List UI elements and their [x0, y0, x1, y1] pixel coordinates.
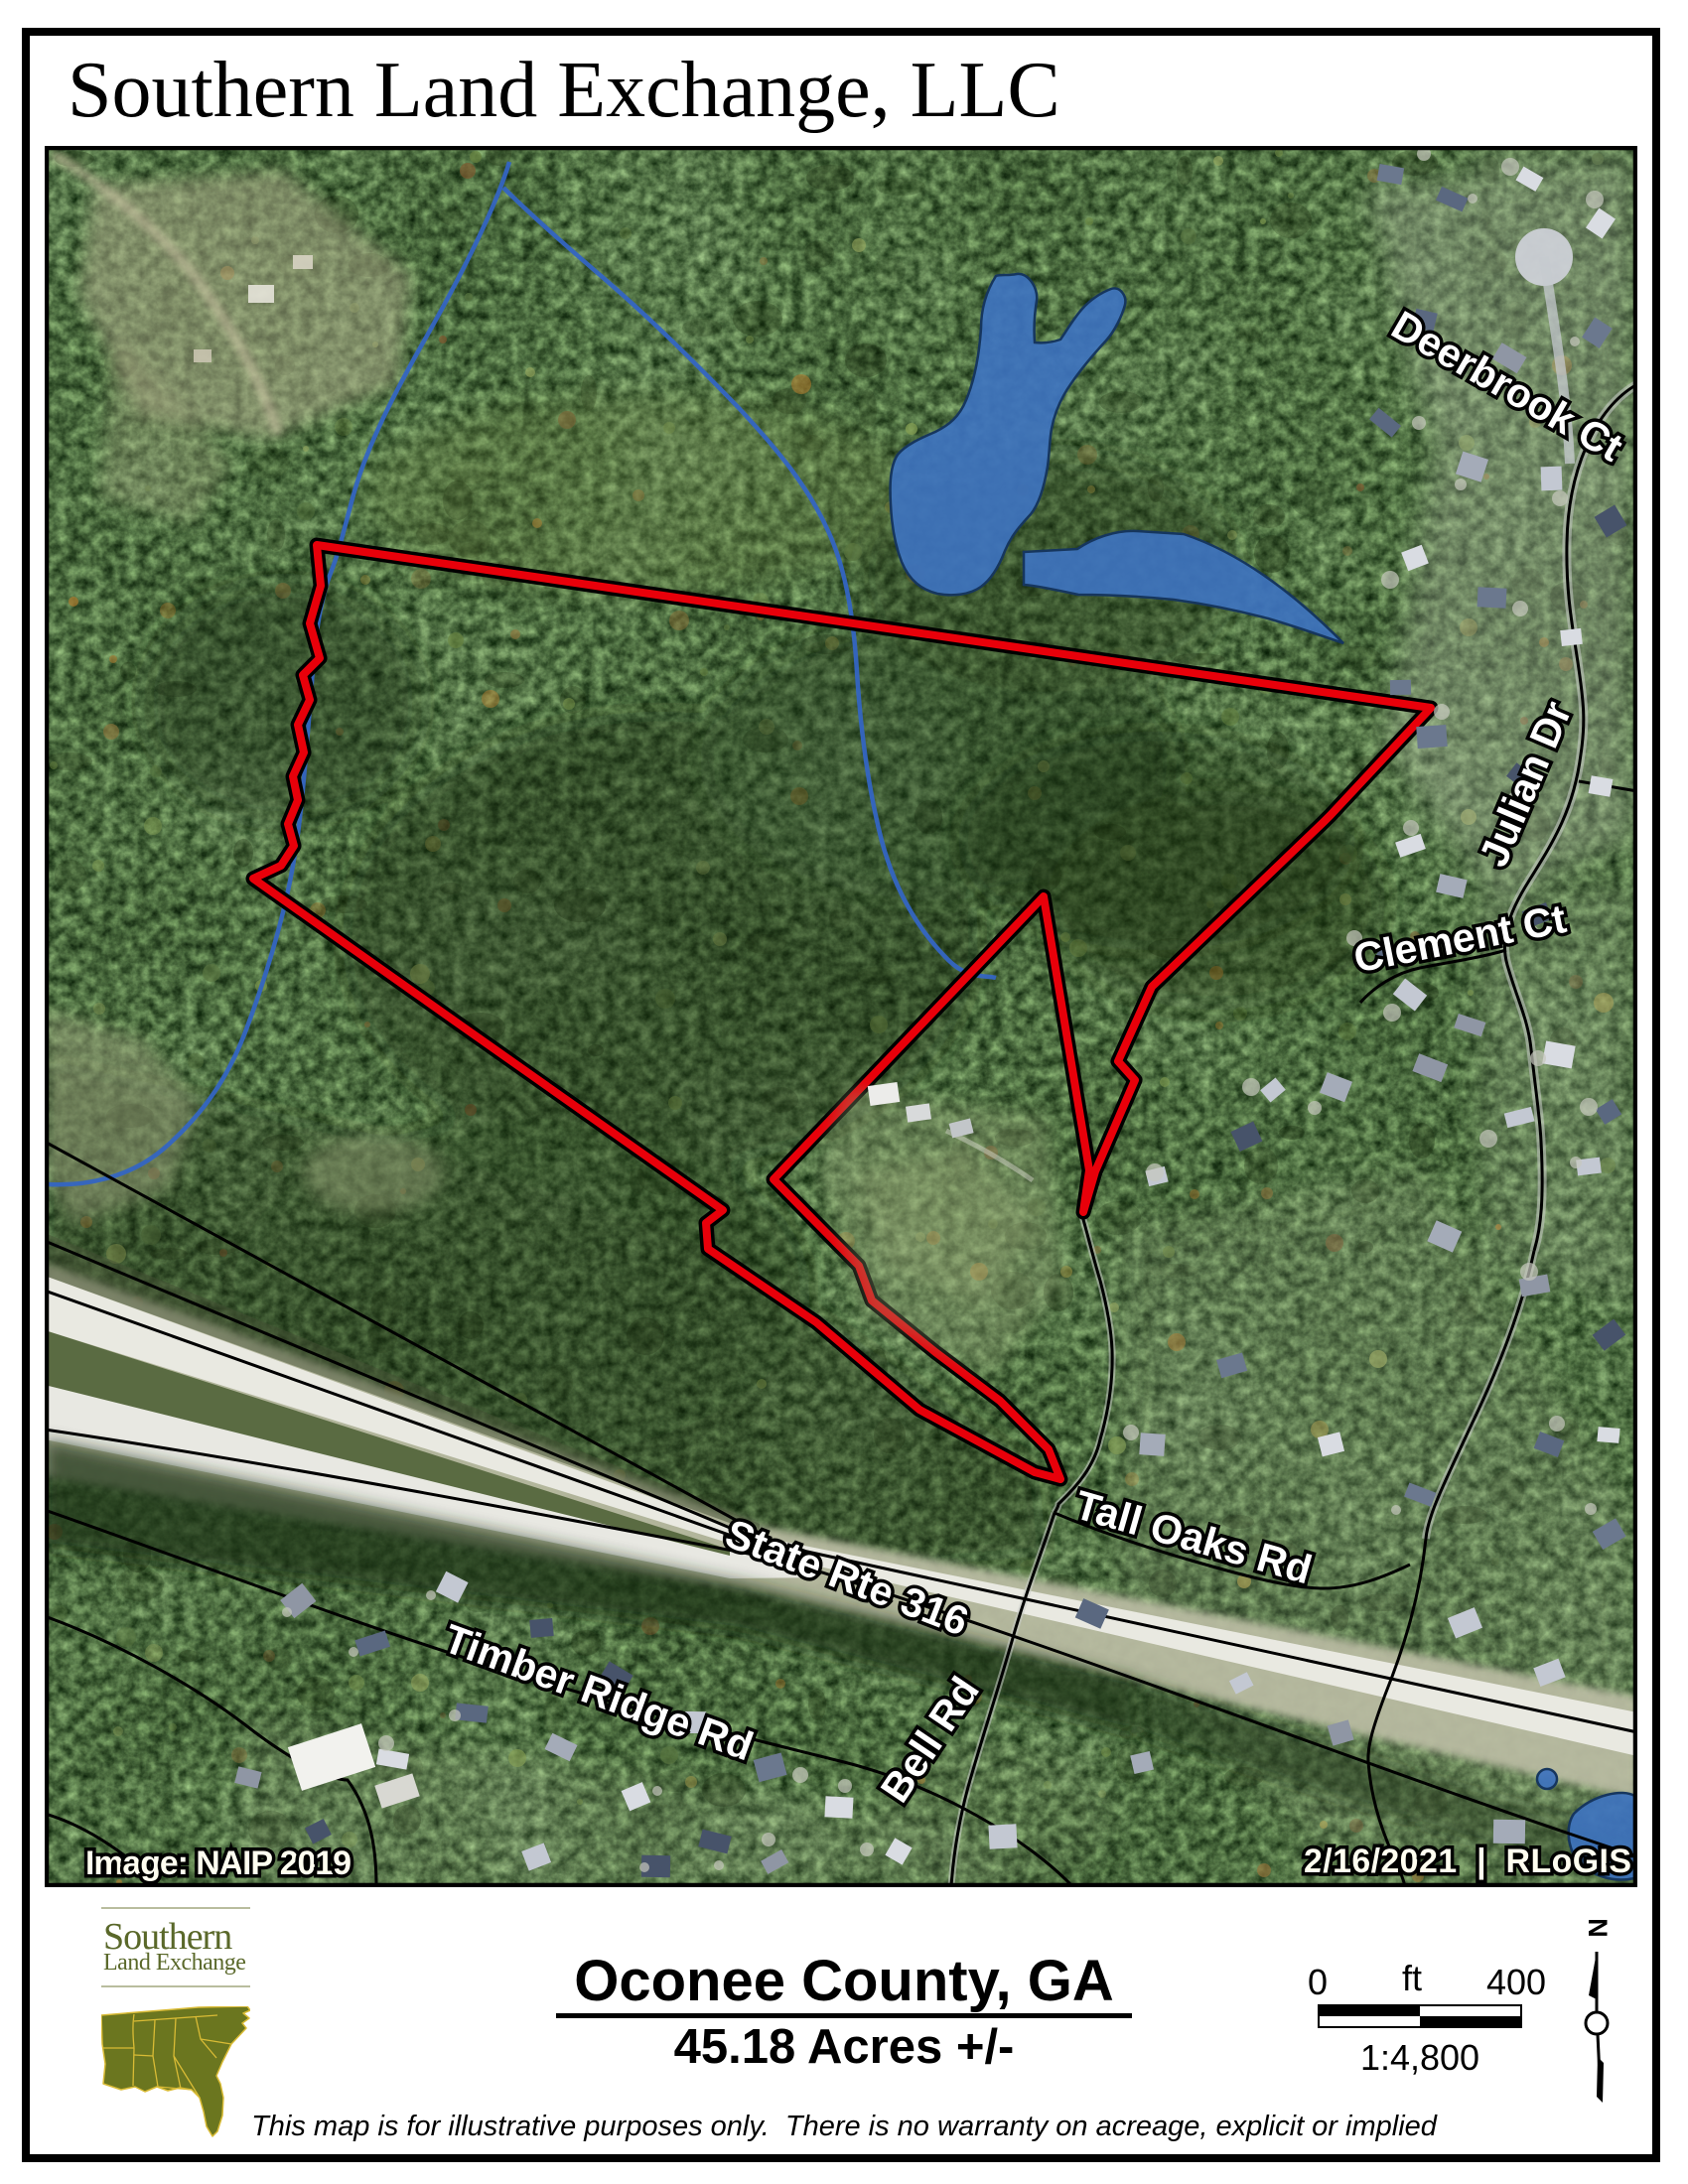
svg-text:2/16/2021 | RLoGIS: 2/16/2021 | RLoGIS: [1304, 1843, 1631, 1880]
svg-text:Image: NAIP 2019: Image: NAIP 2019: [85, 1844, 352, 1882]
svg-text:N: N: [1583, 1918, 1613, 1938]
